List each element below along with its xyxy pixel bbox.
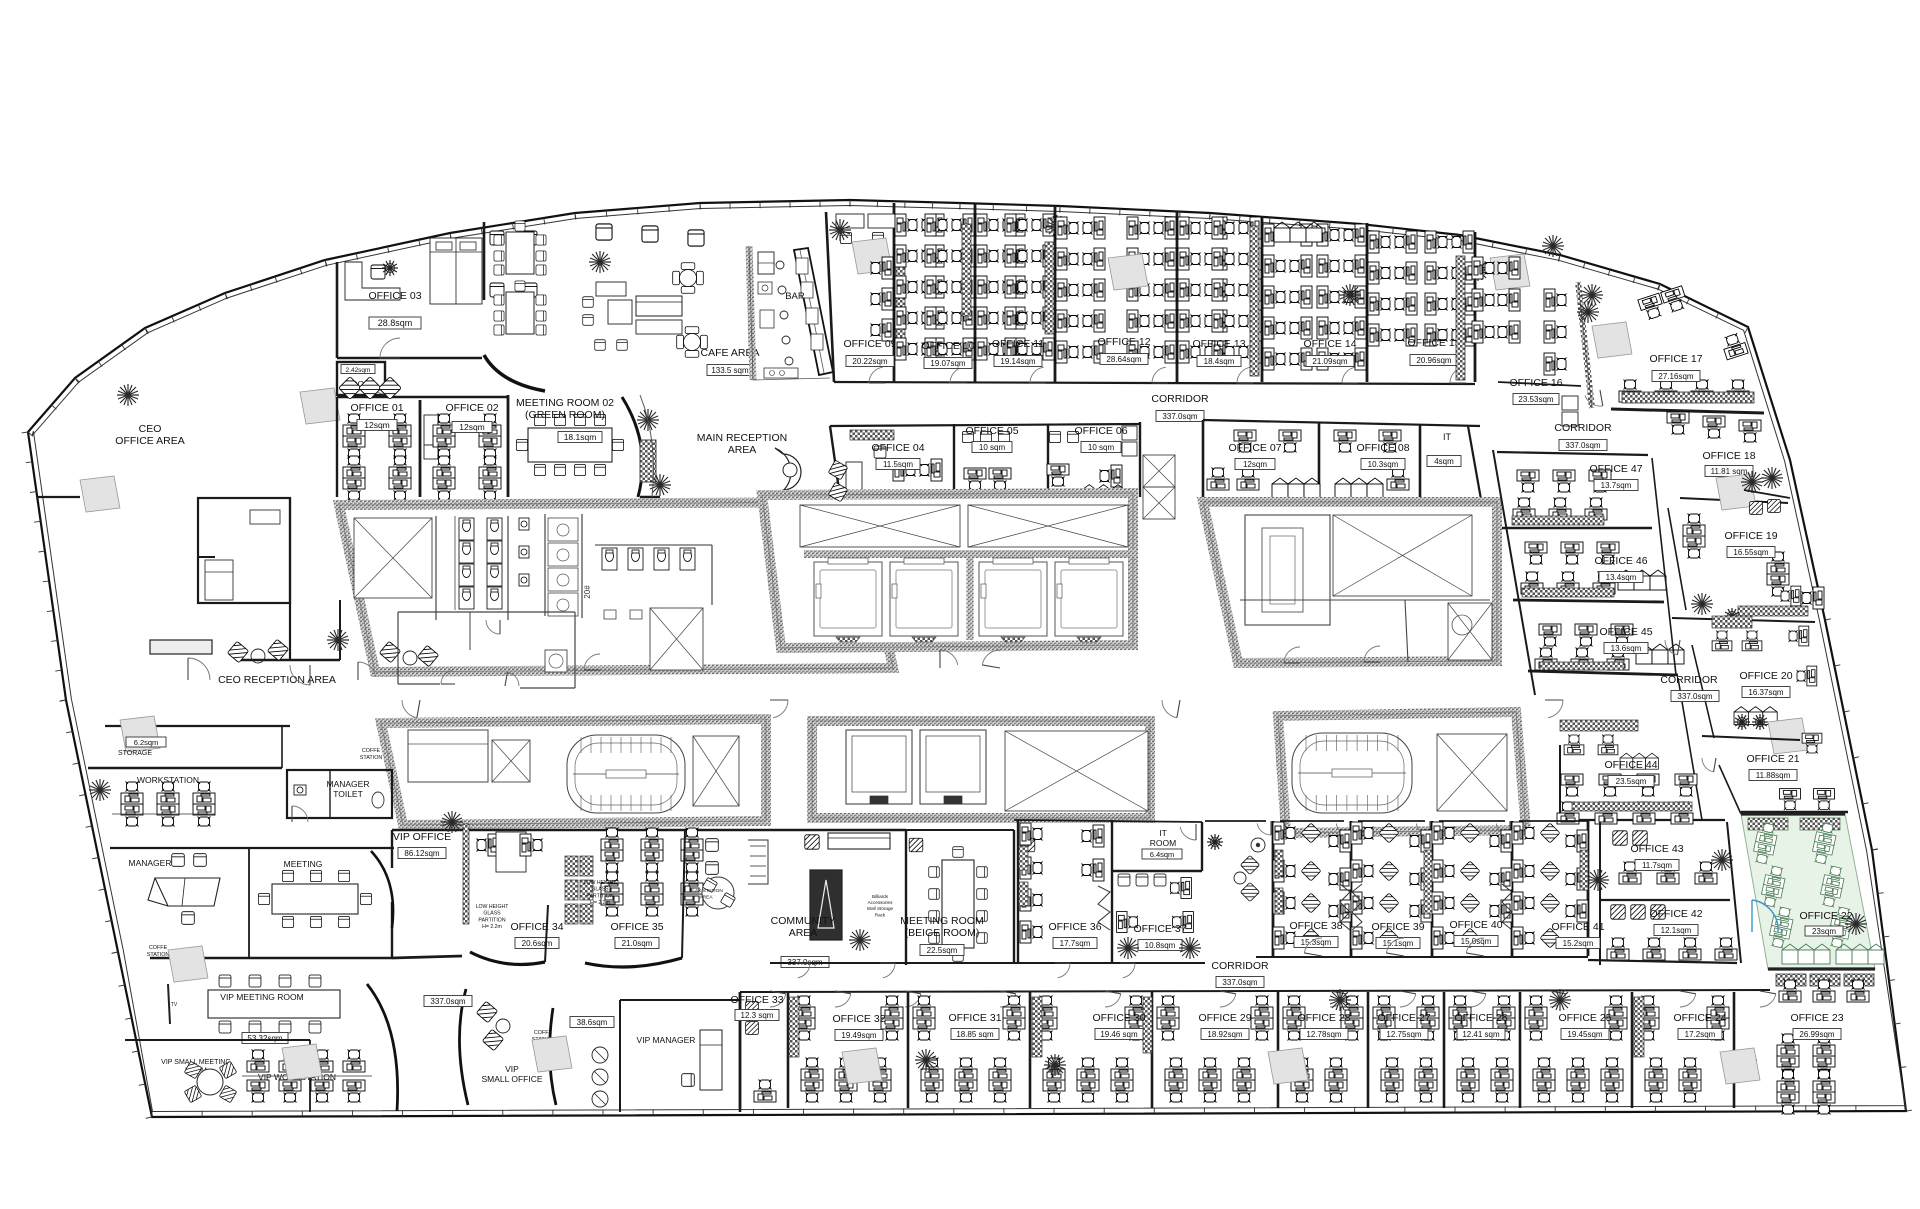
svg-text:Rack: Rack: [875, 912, 886, 917]
svg-text:12sqm: 12sqm: [459, 422, 485, 432]
svg-text:19.14sqm: 19.14sqm: [1000, 357, 1035, 366]
svg-text:53.32sqm: 53.32sqm: [247, 1034, 282, 1043]
svg-text:OFFICE 01: OFFICE 01: [350, 402, 403, 414]
svg-text:OFFICE 31: OFFICE 31: [948, 1012, 1001, 1024]
svg-text:GLASS: GLASS: [483, 911, 501, 917]
svg-text:38.6sqm: 38.6sqm: [577, 1018, 608, 1027]
svg-text:LOW HEIGHT: LOW HEIGHT: [584, 880, 618, 886]
svg-text:OFFICE 42: OFFICE 42: [1649, 908, 1702, 920]
svg-text:10.8sqm: 10.8sqm: [1145, 941, 1176, 950]
svg-text:337.0sqm: 337.0sqm: [1677, 692, 1712, 701]
svg-text:SMALL OFFICE: SMALL OFFICE: [481, 1074, 542, 1084]
svg-text:12sqm: 12sqm: [364, 420, 390, 430]
svg-text:12sqm: 12sqm: [1243, 460, 1267, 469]
svg-text:19.07sqm: 19.07sqm: [930, 359, 965, 368]
svg-text:337.0sqm: 337.0sqm: [1162, 412, 1197, 421]
svg-text:21.09sqm: 21.09sqm: [1312, 357, 1347, 366]
svg-text:(BEIGE ROOM): (BEIGE ROOM): [905, 927, 980, 939]
svg-text:OFFICE 15: OFFICE 15: [1407, 337, 1460, 349]
svg-text:OFFICE 19: OFFICE 19: [1724, 530, 1777, 542]
svg-text:OFFICE 34: OFFICE 34: [510, 921, 563, 933]
svg-text:OFFICE 23: OFFICE 23: [1790, 1012, 1843, 1024]
svg-text:13.6sqm: 13.6sqm: [1611, 644, 1642, 653]
svg-text:OFFICE 03: OFFICE 03: [368, 290, 421, 302]
svg-text:OFFICE 46: OFFICE 46: [1594, 555, 1647, 567]
svg-text:PLAK STATION: PLAK STATION: [689, 888, 723, 894]
svg-text:COFFE: COFFE: [534, 1030, 553, 1036]
svg-text:PARTITION: PARTITION: [478, 917, 505, 923]
svg-text:OFFICE 06: OFFICE 06: [1074, 425, 1127, 437]
svg-text:TOILET: TOILET: [333, 789, 363, 799]
svg-text:18.92sqm: 18.92sqm: [1207, 1030, 1242, 1039]
svg-text:OFFICE 30: OFFICE 30: [1092, 1012, 1145, 1024]
svg-text:11.5sqm: 11.5sqm: [883, 460, 913, 469]
svg-text:COFFE: COFFE: [362, 748, 381, 754]
svg-text:H= 2.2m: H= 2.2m: [590, 900, 610, 906]
svg-text:OFFICE 47: OFFICE 47: [1589, 463, 1642, 475]
svg-text:BAR: BAR: [785, 291, 805, 302]
svg-text:10.3sqm: 10.3sqm: [1368, 460, 1399, 469]
svg-text:OFFICE 13: OFFICE 13: [1192, 338, 1245, 350]
svg-text:(GREEN ROOM): (GREEN ROOM): [525, 409, 605, 421]
svg-text:IT: IT: [1443, 432, 1452, 442]
svg-text:20.22sqm: 20.22sqm: [852, 357, 887, 366]
svg-text:OFFICE 05: OFFICE 05: [965, 425, 1018, 437]
svg-text:Wall Storage: Wall Storage: [867, 906, 894, 911]
svg-text:2.42sqm: 2.42sqm: [346, 367, 371, 374]
svg-text:19.45sqm: 19.45sqm: [1567, 1030, 1602, 1039]
svg-text:STORAGE: STORAGE: [118, 750, 152, 757]
svg-text:AREA: AREA: [728, 444, 757, 456]
svg-text:86.12sqm: 86.12sqm: [404, 849, 439, 858]
svg-text:13.7sqm: 13.7sqm: [1601, 481, 1632, 490]
svg-text:OFFICE 45: OFFICE 45: [1599, 626, 1652, 638]
svg-text:20.6sqm: 20.6sqm: [522, 939, 553, 948]
svg-text:27.16sqm: 27.16sqm: [1658, 372, 1693, 381]
svg-text:MEETING ROOM: MEETING ROOM: [900, 915, 983, 927]
svg-text:22.5sqm: 22.5sqm: [927, 946, 958, 955]
svg-text:18.1sqm: 18.1sqm: [564, 432, 597, 442]
svg-text:18.4sqm: 18.4sqm: [1204, 357, 1235, 366]
svg-text:20.96sqm: 20.96sqm: [1416, 356, 1451, 365]
svg-text:Accessories: Accessories: [868, 900, 893, 905]
svg-text:16.55sqm: 16.55sqm: [1733, 548, 1768, 557]
svg-text:COMMUNITY: COMMUNITY: [771, 915, 836, 927]
svg-text:VIP OFFICE: VIP OFFICE: [393, 831, 451, 843]
svg-text:OFFICE 43: OFFICE 43: [1630, 843, 1683, 855]
svg-text:OFFICE 28: OFFICE 28: [1297, 1012, 1350, 1024]
svg-text:12.3 sqm: 12.3 sqm: [741, 1011, 774, 1020]
svg-text:12.41 sqm: 12.41 sqm: [1462, 1030, 1500, 1039]
svg-text:10 sqm: 10 sqm: [1088, 443, 1115, 452]
svg-text:COFFE: COFFE: [149, 945, 168, 951]
svg-text:VIP MEETING ROOM: VIP MEETING ROOM: [220, 992, 303, 1002]
svg-text:OFFICE 27: OFFICE 27: [1377, 1012, 1430, 1024]
svg-text:CEO RECEPTION AREA: CEO RECEPTION AREA: [218, 674, 336, 686]
svg-text:CORRIDOR: CORRIDOR: [1660, 674, 1718, 686]
svg-text:H= 2.2m: H= 2.2m: [482, 924, 502, 930]
svg-text:AREA: AREA: [699, 894, 713, 900]
svg-text:OFFICE 08: OFFICE 08: [1356, 442, 1409, 454]
svg-text:17.2sqm: 17.2sqm: [1685, 1030, 1716, 1039]
svg-text:OFFICE 38: OFFICE 38: [1289, 920, 1342, 932]
svg-text:PARTITION: PARTITION: [586, 893, 613, 899]
svg-text:CEO: CEO: [139, 423, 162, 435]
svg-text:MEETING ROOM 02: MEETING ROOM 02: [516, 397, 614, 409]
svg-text:OFFICE 16: OFFICE 16: [1509, 377, 1562, 389]
svg-text:19.49sqm: 19.49sqm: [841, 1031, 876, 1040]
svg-text:OFFICE 32: OFFICE 32: [832, 1013, 885, 1025]
svg-text:12.78sqm: 12.78sqm: [1306, 1030, 1341, 1039]
svg-text:STATION: STATION: [360, 755, 383, 761]
svg-text:AREA: AREA: [789, 927, 818, 939]
svg-text:OFFICE 17: OFFICE 17: [1649, 353, 1702, 365]
svg-text:OFFICE 37: OFFICE 37: [1133, 923, 1186, 935]
svg-text:11.88sqm: 11.88sqm: [1756, 771, 1791, 780]
svg-text:CORRIDOR: CORRIDOR: [1151, 393, 1209, 405]
svg-text:337.0sqm: 337.0sqm: [430, 997, 465, 1006]
svg-text:LOW HEIGHT: LOW HEIGHT: [476, 904, 510, 910]
svg-text:337.0sqm: 337.0sqm: [1222, 978, 1257, 987]
svg-text:MAIN RECEPTION: MAIN RECEPTION: [697, 432, 787, 444]
svg-text:11.7sqm: 11.7sqm: [1642, 861, 1672, 870]
svg-text:OFFICE 10: OFFICE 10: [921, 340, 974, 352]
svg-text:23.5sqm: 23.5sqm: [1616, 777, 1647, 786]
svg-text:337.0sqm: 337.0sqm: [1565, 441, 1600, 450]
svg-text:OFFICE 35: OFFICE 35: [610, 921, 663, 933]
svg-text:OFFICE 12: OFFICE 12: [1097, 336, 1150, 348]
svg-text:20#: 20#: [583, 585, 592, 599]
svg-text:OFFICE 24: OFFICE 24: [1673, 1012, 1726, 1024]
svg-text:MANAGER: MANAGER: [327, 779, 370, 789]
svg-text:IT: IT: [1159, 828, 1167, 838]
svg-text:VIP MANAGER: VIP MANAGER: [637, 1035, 696, 1045]
svg-text:OFFICE 41: OFFICE 41: [1551, 921, 1604, 933]
svg-text:28.64sqm: 28.64sqm: [1106, 355, 1141, 364]
svg-text:17.7sqm: 17.7sqm: [1060, 939, 1091, 948]
svg-text:OFFICE 36: OFFICE 36: [1048, 921, 1101, 933]
svg-text:ROOM: ROOM: [1150, 838, 1176, 848]
svg-text:18.85 sqm: 18.85 sqm: [956, 1030, 994, 1039]
svg-text:OFFICE 33: OFFICE 33: [730, 994, 783, 1006]
svg-text:15.3sqm: 15.3sqm: [1301, 938, 1332, 947]
svg-text:OFFICE 21: OFFICE 21: [1746, 753, 1799, 765]
svg-text:MANAGER: MANAGER: [129, 858, 172, 868]
svg-text:OFFICE 39: OFFICE 39: [1371, 921, 1424, 933]
svg-text:6.2sqm: 6.2sqm: [134, 738, 159, 747]
svg-text:16.37sqm: 16.37sqm: [1748, 688, 1783, 697]
svg-text:21.0sqm: 21.0sqm: [622, 939, 653, 948]
svg-text:23.53sqm: 23.53sqm: [1518, 395, 1553, 404]
svg-text:15.0sqm: 15.0sqm: [1461, 937, 1492, 946]
svg-text:GLASS: GLASS: [591, 887, 609, 893]
svg-text:15.1sqm: 15.1sqm: [1383, 939, 1414, 948]
svg-text:23sqm: 23sqm: [1812, 927, 1836, 936]
svg-text:12.75sqm: 12.75sqm: [1386, 1030, 1421, 1039]
svg-text:OFFICE 11: OFFICE 11: [992, 338, 1044, 350]
svg-text:OFFICE 26: OFFICE 26: [1454, 1012, 1507, 1024]
svg-text:OFFICE 07: OFFICE 07: [1228, 442, 1281, 454]
svg-text:19.46 sqm: 19.46 sqm: [1100, 1030, 1138, 1039]
svg-text:13.4sqm: 13.4sqm: [1606, 573, 1637, 582]
svg-text:TV: TV: [171, 1002, 178, 1008]
svg-text:MEETING: MEETING: [284, 859, 323, 869]
svg-text:133.5 sqm: 133.5 sqm: [711, 366, 749, 375]
svg-text:15.2sqm: 15.2sqm: [1563, 939, 1594, 948]
svg-text:Billiards: Billiards: [872, 894, 889, 899]
svg-text:OFFICE 14: OFFICE 14: [1303, 338, 1356, 350]
svg-text:28.8sqm: 28.8sqm: [378, 318, 413, 328]
svg-text:OFFICE 29: OFFICE 29: [1198, 1012, 1251, 1024]
svg-text:CORRIDOR: CORRIDOR: [1554, 422, 1612, 434]
svg-text:OFFICE 20: OFFICE 20: [1739, 670, 1792, 682]
svg-text:OFFICE 22: OFFICE 22: [1799, 910, 1852, 922]
svg-text:OFFICE 44: OFFICE 44: [1604, 759, 1657, 771]
svg-text:CORRIDOR: CORRIDOR: [1211, 960, 1269, 972]
svg-text:26.99sqm: 26.99sqm: [1799, 1030, 1834, 1039]
svg-text:OFFICE 09: OFFICE 09: [843, 338, 896, 350]
svg-text:12.1sqm: 12.1sqm: [1661, 926, 1692, 935]
svg-text:6.4sqm: 6.4sqm: [1150, 850, 1175, 859]
svg-text:OFFICE 18: OFFICE 18: [1702, 450, 1755, 462]
svg-text:OFFICE 40: OFFICE 40: [1449, 919, 1502, 931]
svg-text:STATION: STATION: [147, 952, 170, 958]
svg-text:OFFICE 04: OFFICE 04: [871, 442, 924, 454]
svg-text:VIP: VIP: [505, 1064, 519, 1074]
svg-text:OFFICE AREA: OFFICE AREA: [115, 435, 184, 447]
svg-text:OFFICE 02: OFFICE 02: [445, 402, 498, 414]
svg-text:OFFICE 25: OFFICE 25: [1558, 1012, 1611, 1024]
svg-text:4sqm: 4sqm: [1434, 457, 1454, 466]
svg-text:10 sqm: 10 sqm: [979, 443, 1006, 452]
